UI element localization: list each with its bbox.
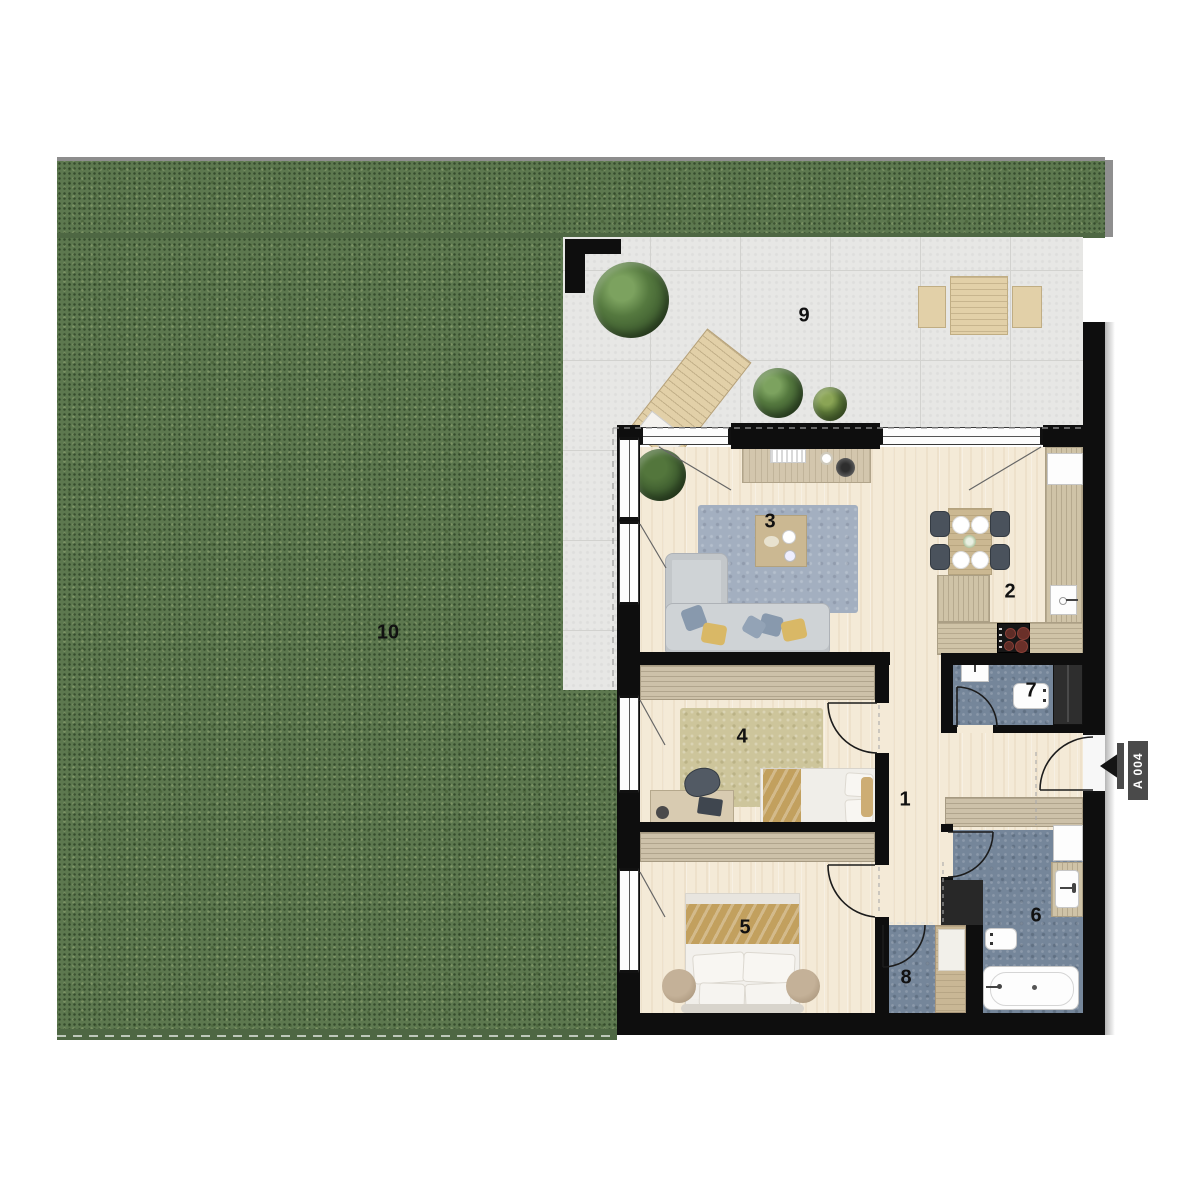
- room-label-garden: 10: [377, 622, 399, 645]
- room-label-bathroom: 6: [1030, 905, 1041, 928]
- bedroom2-window: [619, 868, 639, 973]
- entrance-door-opening: [1083, 733, 1105, 793]
- room-label-storage: 8: [900, 967, 911, 990]
- wall-bath-storage: [966, 925, 983, 1013]
- bath-washbasin-icon: [1055, 870, 1079, 908]
- wall-north-mid: [731, 423, 880, 449]
- floor-plan: A 004 1 2 3 4 5 6 7 8 9 10: [0, 0, 1200, 1200]
- room-label-hallway: 1: [899, 789, 910, 812]
- wall-kitchen-wc: [947, 653, 1105, 665]
- tv-icon: [770, 449, 806, 463]
- entrance-flag-pole: [1117, 743, 1124, 789]
- flower-icon: [963, 535, 976, 548]
- dining-chair-icon: [990, 544, 1010, 570]
- dining-chair-icon: [990, 511, 1010, 537]
- shaft: [941, 880, 983, 925]
- shadow-east-wall: [1105, 322, 1115, 1035]
- wall-east-upper: [1083, 322, 1105, 733]
- room-label-terrace: 9: [798, 305, 809, 328]
- potted-plant-icon: [753, 368, 803, 418]
- cooktop-icon: [997, 623, 1030, 653]
- unit-label: A 004: [1128, 741, 1148, 800]
- bathroom-door-opening: [941, 832, 953, 877]
- garden-bottom-edge: [57, 1029, 617, 1040]
- room-label-wc: 7: [1025, 680, 1036, 703]
- storage-floor: [889, 925, 935, 1013]
- living-room-window-north: [640, 427, 731, 445]
- bedroom2-bed: [685, 893, 800, 1008]
- wall-living-bedroom: [640, 652, 890, 665]
- wall-wc-left: [941, 653, 953, 733]
- garden-lawn-top: [57, 161, 1105, 237]
- kitchen-appliance: [1047, 453, 1083, 485]
- plate-icon: [952, 551, 970, 569]
- kitchen-window-north: [880, 427, 1043, 445]
- potted-plant-icon: [813, 387, 847, 421]
- plate-icon: [971, 516, 989, 534]
- bedroom1-wardrobe: [640, 665, 875, 700]
- wc-closet: [1053, 658, 1083, 725]
- tree-icon: [593, 262, 669, 338]
- desk-lamp-icon: [656, 806, 669, 819]
- wall-bedrooms: [617, 822, 889, 832]
- terrace-paving-side: [563, 437, 617, 690]
- bedroom2-door-opening: [875, 865, 889, 917]
- nightstand-icon: [786, 969, 820, 1003]
- bed-footboard: [681, 1004, 804, 1013]
- storage-cabinet: [935, 925, 966, 1013]
- bath-toilet-icon: [985, 928, 1017, 950]
- coffee-table: [755, 515, 807, 567]
- dining-chair-icon: [930, 511, 950, 537]
- room-label-living-room: 3: [764, 511, 775, 534]
- decor-ring-icon: [820, 452, 833, 465]
- plant-icon: [634, 449, 686, 501]
- room-label-bedroom-2: 5: [739, 917, 750, 940]
- shadow-east: [1105, 160, 1113, 237]
- outdoor-table-icon: [950, 276, 1008, 335]
- living-room-window-west-2: [619, 521, 639, 605]
- laptop-icon: [697, 796, 723, 816]
- decor-bowl-icon: [836, 458, 855, 477]
- kitchen-sink-icon: [1050, 585, 1077, 615]
- kitchen-peninsula: [937, 575, 990, 622]
- nightstand-icon: [662, 969, 696, 1003]
- bedroom2-wardrobe: [640, 832, 875, 862]
- sofa-pillow: [700, 622, 727, 646]
- wc-door-opening: [957, 725, 993, 733]
- living-room-window-west-1: [619, 437, 639, 520]
- plate-icon: [971, 551, 989, 569]
- outdoor-bench-icon: [918, 286, 946, 328]
- bedroom1-window: [619, 695, 639, 793]
- terrace-corner-wall-2: [565, 239, 585, 293]
- wall-south: [617, 1013, 1105, 1035]
- hallway-wardrobe: [945, 797, 1083, 827]
- room-label-bedroom-1: 4: [736, 726, 747, 749]
- dining-chair-icon: [930, 544, 950, 570]
- room-label-kitchen: 2: [1004, 581, 1015, 604]
- bedroom1-door-opening: [875, 703, 889, 753]
- outdoor-bench-icon: [1012, 286, 1042, 328]
- plate-icon: [952, 516, 970, 534]
- garden-lawn: [57, 237, 617, 1040]
- bedroom1-bed: [760, 768, 877, 826]
- shower-cabinet: [1053, 825, 1083, 861]
- bathtub-icon: [983, 966, 1079, 1010]
- wall-east-lower: [1083, 793, 1105, 1035]
